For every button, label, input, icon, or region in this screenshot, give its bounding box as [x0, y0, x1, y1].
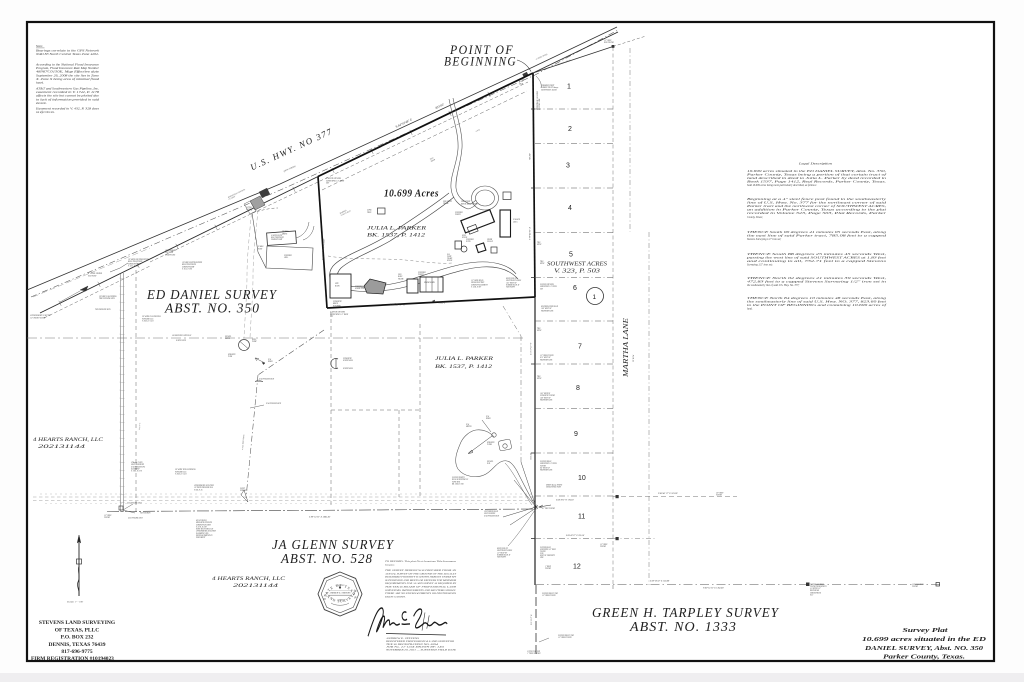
- svg-text:N 89°41′17″ E 319.99′: N 89°41′17″ E 319.99′: [657, 492, 678, 495]
- svg-text:THENCE North 84 degrees 10: THENCE North 84 degrees 10 minutes 48 se…: [747, 297, 887, 300]
- svg-text:ABST. NO. 528: ABST. NO. 528: [280, 551, 373, 566]
- svg-text:recorded in Volume 323, Pa: recorded in Volume 323, Page 503, Plat R…: [747, 212, 888, 215]
- svg-text:732.71′: 732.71′: [438, 302, 446, 305]
- svg-text:S 88°19′32″ E 150.48′: S 88°19′32″ E 150.48′: [650, 580, 670, 583]
- svg-text:STORM: STORM: [487, 239, 493, 241]
- svg-text:6394: 6394: [338, 599, 344, 602]
- svg-text:817-696-9775: 817-696-9775: [61, 649, 92, 655]
- svg-text:not affect this site.: not affect this site.: [36, 111, 55, 114]
- svg-text:Surveying 1/2″ iron set;: Surveying 1/2″ iron set;: [747, 264, 773, 267]
- svg-text:LINE: LINE: [539, 557, 543, 559]
- svg-text:Book 1537, Page 1412, Real: Book 1537, Page 1412, Real Records, Park…: [747, 181, 887, 184]
- svg-text:9: 9: [574, 431, 578, 438]
- svg-text:Notes:: Notes:: [35, 45, 43, 48]
- svg-text:ACTUAL SURVEY ON THE GROUN: ACTUAL SURVEY ON THE GROUND OF THE LEGAL…: [384, 572, 457, 575]
- svg-text:AREA: AREA: [512, 220, 518, 223]
- svg-text:PUMP: PUMP: [251, 341, 257, 343]
- svg-text:Parker County, Texas.: Parker County, Texas.: [883, 654, 966, 661]
- svg-text:50′ ROW: 50′ ROW: [633, 354, 635, 362]
- svg-text:REGISTERED: REGISTERED: [335, 585, 346, 587]
- svg-text:Said 10.699 acres being mo: Said 10.699 acres being more particularl…: [747, 184, 817, 187]
- svg-text:THENCE North 02 degrees 21: THENCE North 02 degrees 21 minutes 39 se…: [747, 277, 887, 280]
- svg-text:10: 10: [578, 475, 586, 482]
- svg-text:SOUTHWEST ACRES: SOUTHWEST ACRES: [547, 262, 607, 268]
- svg-text:11: 11: [578, 514, 585, 521]
- svg-text:202131144: 202131144: [38, 445, 86, 450]
- svg-text:DRIVE: DRIVE: [224, 338, 230, 340]
- svg-text:4 HEARTS RANCH, LLC: 4 HEARTS RANCH, LLC: [33, 438, 104, 443]
- svg-text:PUMP: PUMP: [446, 256, 451, 258]
- svg-text:PROPERTY LINE: PROPERTY LINE: [539, 470, 552, 472]
- svg-text:472.83 feet to a capped S: 472.83 feet to a capped Stevens Surveyin…: [747, 281, 887, 284]
- svg-text:S 89°12′32″ E 1442.42′: S 89°12′32″ E 1442.42′: [309, 516, 331, 519]
- svg-text:S 88°25′45″ W: S 88°25′45″ W: [390, 304, 406, 307]
- svg-text:N 89°12′32″ E 1362.48′: N 89°12′32″ E 1362.48′: [702, 587, 724, 590]
- svg-text:ANDREW E. STEVENS: ANDREW E. STEVENS: [329, 592, 352, 595]
- svg-text:THE SURVEY HEREON WAS PREP: THE SURVEY HEREON WAS PREPARED FROM AN: [385, 569, 457, 572]
- svg-text:THE TEXAS BOARD OF PROFESS: THE TEXAS BOARD OF PROFESSIONAL LAND: [385, 586, 457, 589]
- svg-text:BK. 1537, P. 1412: BK. 1537, P. 1412: [367, 233, 425, 239]
- svg-text:BRICK &amp; STONE: BRICK &amp; STONE: [461, 203, 479, 205]
- svg-text:202131144: 202131144: [233, 584, 279, 589]
- svg-text:WATER LINE: WATER LINE: [176, 339, 187, 342]
- svg-text:S 01°17′21″ W: S 01°17′21″ W: [530, 343, 533, 355]
- svg-text:THENCE South 00 degrees 41: THENCE South 00 degrees 41 minutes 05 se…: [747, 231, 887, 234]
- svg-text:PAD POST: PAD POST: [87, 274, 97, 277]
- svg-text:According to the National Floo: According to the National Flood Insuranc…: [35, 64, 101, 67]
- svg-text:METER: METER: [465, 426, 471, 428]
- svg-text:GAS PIPELINE SIGN: GAS PIPELINE SIGN: [259, 378, 275, 381]
- svg-text:easement recorded in V. 1742,: easement recorded in V. 1742, P. 1178: [36, 91, 100, 94]
- svg-text:S 01°17′ E: S 01°17′ E: [138, 423, 141, 430]
- svg-text:PATIO: PATIO: [465, 240, 471, 243]
- svg-text:GAS PIPELINE SIGN: GAS PIPELINE SIGN: [484, 514, 500, 517]
- svg-text:land described in deed to: land described in deed to Julia L. Parke…: [747, 177, 887, 180]
- svg-text:THENCE South 88 degrees 25: THENCE South 88 degrees 25 minutes 45 se…: [747, 253, 887, 256]
- svg-text:S 00°41′05″ E: S 00°41′05″ E: [529, 226, 532, 240]
- svg-text:TANKS: TANKS: [487, 443, 492, 446]
- svg-text:document.: document.: [36, 102, 47, 105]
- svg-text:SUPERVISION AND MEETS OR E: SUPERVISION AND MEETS OR EXCEEDS THE MIN…: [385, 579, 457, 582]
- svg-text:WATER WELL: WATER WELL: [343, 359, 353, 362]
- svg-text:OF FENCE LINE: OF FENCE LINE: [539, 99, 541, 110]
- svg-text:CUB: CUB: [540, 553, 543, 555]
- svg-text:BELL TELEPHONE: BELL TELEPHONE: [271, 237, 284, 239]
- svg-text:S 01°19′17″ W: S 01°19′17″ W: [530, 614, 533, 625]
- svg-text:1/2″ IRON FOUND: 1/2″ IRON FOUND: [30, 317, 46, 319]
- svg-text:MARTHA LANE: MARTHA LANE: [623, 317, 630, 378]
- svg-text:10.699 acres situated in t: 10.699 acres situated in the ED: [862, 636, 987, 643]
- svg-text:hazard.: hazard.: [36, 82, 44, 85]
- svg-text:BUILDING: BUILDING: [333, 305, 342, 307]
- svg-text:SURVEYORS. IMPROVEMENTS AND: SURVEYORS. IMPROVEMENTS AND BIG ITEMS SH…: [385, 589, 457, 592]
- svg-text:DENNIS, TEXAS 76439: DENNIS, TEXAS 76439: [49, 642, 106, 648]
- svg-text:4: 4: [568, 205, 572, 212]
- svg-text:1: 1: [567, 84, 571, 91]
- svg-text:FRAME: FRAME: [442, 202, 449, 205]
- svg-text:HORSE BARN: HORSE BARN: [423, 281, 435, 284]
- svg-text:S 89°41′17″ E 295.16′: S 89°41′17″ E 295.16′: [566, 534, 585, 537]
- svg-text:6: 6: [573, 285, 577, 292]
- svg-text:TO RECORD: This plat First: TO RECORD: This plat First American Titl…: [385, 560, 456, 563]
- svg-text:V. 2035, P. 1123: V. 2035, P. 1123: [142, 321, 154, 323]
- svg-text:ABANDONED ARTESIAN: ABANDONED ARTESIAN: [171, 334, 192, 337]
- svg-text:OF TEXAS, PLLC: OF TEXAS, PLLC: [55, 628, 99, 634]
- svg-text:AT&T and Southwestern Gas Pipe: AT&T and Southwestern Gas Pipeline, Inc.: [35, 88, 100, 91]
- svg-text:County, Texas;: County, Texas;: [747, 216, 763, 219]
- svg-text:S 84°10′2″ W 176.83′: S 84°10′2″ W 176.83′: [556, 499, 574, 502]
- svg-text:JULIA L. PARKER: JULIA L. PARKER: [435, 356, 494, 362]
- svg-text:ABST. NO. 1333: ABST. NO. 1333: [629, 619, 737, 634]
- svg-text:FOUND: FOUND: [715, 495, 723, 497]
- svg-text:WEST OF PROPERTY: WEST OF PROPERTY: [540, 555, 556, 557]
- svg-text:PROPERTY LINE: PROPERTY LINE: [539, 399, 552, 401]
- svg-text:TRIG PIPELINE SIGN: TRIG PIPELINE SIGN: [99, 298, 116, 300]
- svg-text:1″ PIPE FOUND: 1″ PIPE FOUND: [543, 508, 556, 510]
- svg-text:BARN: BARN: [335, 284, 340, 287]
- svg-text:10.699 Acres: 10.699 Acres: [384, 189, 439, 200]
- svg-text:V. 1234, P. 987: V. 1234, P. 987: [471, 285, 481, 288]
- svg-text:GREEN H. TARPLEY SURVEY: GREEN H. TARPLEY SURVEY: [592, 605, 779, 620]
- svg-text:Beginning at a 4″ steel f: Beginning at a 4″ steel fence post found…: [747, 198, 888, 201]
- svg-text:FOUND: FOUND: [103, 517, 111, 519]
- svg-text:FOUND: FOUND: [911, 586, 919, 588]
- svg-text:P.O. BOX 232: P.O. BOX 232: [61, 635, 94, 641]
- svg-text:PROPERTY LINE: PROPERTY LINE: [539, 359, 552, 361]
- svg-text:V. 1112, P. 398: V. 1112, P. 398: [182, 268, 192, 270]
- svg-text:785.08′: 785.08′: [530, 153, 532, 160]
- svg-text:3: 3: [566, 163, 570, 170]
- svg-text:V. 845, P. 36: V. 845, P. 36: [194, 488, 203, 491]
- svg-text:JOB No. 21-1234 DRAWN BY: JOB No. 21-1234 DRAWN BY: AES: [386, 646, 446, 649]
- svg-text:5: 5: [569, 252, 573, 259]
- svg-text:Company;: Company;: [385, 564, 395, 566]
- svg-text:NOVEMBER 29, 2021 — SURVEY: NOVEMBER 29, 2021 — SURVEYED FIELD DATE: [384, 649, 456, 652]
- svg-text:12: 12: [573, 564, 581, 571]
- svg-text:SOUTHWEST ACRES: SOUTHWEST ACRES: [541, 88, 557, 91]
- svg-text:FIRM REGISTRATION #10194023: FIRM REGISTRATION #10194023: [31, 656, 114, 662]
- svg-text:FOUND: FOUND: [599, 546, 607, 548]
- svg-text:PORCH: PORCH: [454, 214, 461, 216]
- svg-text:BEGINNING: BEGINNING: [444, 55, 517, 69]
- svg-text:Parker tract and the north: Parker tract and the northwest corner of…: [745, 205, 887, 208]
- svg-text:REQUIREMENTS FOR A LAND: REQUIREMENTS FOR A LAND SURVEY AS REQUIR…: [384, 582, 457, 585]
- svg-text:Stevens Surveying 1/2″ iron: Stevens Surveying 1/2″ iron set;: [747, 238, 781, 241]
- svg-text:BK. 1537, P. 1412: BK. 1537, P. 1412: [435, 364, 492, 370]
- svg-text:Parker County, Texas being: Parker County, Texas being a portion of …: [745, 174, 889, 177]
- svg-text:V. 2035, P. 1123: V. 2035, P. 1123: [175, 474, 187, 476]
- svg-text:THIS POINT: THIS POINT: [497, 557, 507, 559]
- svg-text:DANIEL SURVEY, Abst. NO. 3: DANIEL SURVEY, Abst. NO. 350: [864, 645, 983, 652]
- svg-text:ROD FOUND: ROD FOUND: [603, 42, 614, 44]
- svg-text:Legal Description: Legal Description: [798, 162, 833, 166]
- svg-text:passing the west line of: passing the west line of said SOUTHWEST …: [745, 257, 887, 260]
- svg-text:Easement recorded in V. 432, P: Easement recorded in V. 432, P. 328 does: [35, 108, 99, 111]
- svg-text:V. 1112, P. 398: V. 1112, P. 398: [128, 266, 138, 268]
- svg-text:DRIVE: DRIVE: [281, 233, 288, 235]
- svg-text:REGISTERED PROFESSIONAL LAND: REGISTERED PROFESSIONAL LAND SURVEYOR: [385, 640, 455, 643]
- svg-text:V. 323, P. 503: V. 323, P. 503: [554, 269, 600, 275]
- svg-text:HIGH: HIGH: [536, 330, 542, 332]
- svg-text:PROPERTY LINE: PROPERTY LINE: [540, 310, 553, 312]
- svg-text:PORCH: PORCH: [417, 274, 424, 276]
- svg-text:WATER WELL: WATER WELL: [343, 367, 353, 370]
- svg-text:DOCUMENT: DOCUMENT: [195, 537, 206, 539]
- svg-text:STEVENS LAND SURVEYING: STEVENS LAND SURVEYING: [39, 620, 116, 626]
- svg-text:HORSE PEN: HORSE PEN: [354, 288, 365, 290]
- svg-text:THIS POINT: THIS POINT: [506, 287, 516, 289]
- svg-text:the east line of said Par: the east line of said Parker tract, 785.…: [747, 235, 887, 238]
- svg-text:HIGH: HIGH: [536, 378, 542, 380]
- svg-text:BK. 2034, P. 394: BK. 2034, P. 394: [452, 482, 464, 485]
- svg-text:2: 2: [568, 126, 572, 133]
- svg-text:RISER: RISER: [485, 418, 491, 420]
- svg-text:1/2″ IRON FOUND: 1/2″ IRON FOUND: [542, 595, 556, 597]
- svg-text:4 HEARTS RANCH, LLC: 4 HEARTS RANCH, LLC: [212, 577, 286, 582]
- svg-text:TEXAS REGISTRATION NO. 6394: TEXAS REGISTRATION NO. 6394: [386, 643, 440, 646]
- svg-text:line of U.S. Hwy. No. 377: line of U.S. Hwy. No. 377 for the northe…: [747, 202, 887, 205]
- svg-text:JA GLENN SURVEY: JA GLENN SURVEY: [272, 537, 394, 552]
- svg-text:HOUSE: HOUSE: [446, 260, 452, 262]
- svg-text:and continuing in all, 732: and continuing in all, 732.71 feet to a …: [747, 260, 886, 263]
- svg-text:SCALE: 1″ = 100′: SCALE: 1″ = 100′: [67, 601, 84, 604]
- svg-text:NAD 83 North Central Texas Zon: NAD 83 North Central Texas Zone 4202.: [34, 53, 99, 56]
- svg-text:Program, Flood Insurance Rate: Program, Flood Insurance Rate Map Number: [35, 67, 99, 70]
- svg-text:the southeasterly line of: the southeasterly line of said U.S. Hwy.…: [747, 301, 887, 304]
- svg-text:Bearings correlate to the GPS: Bearings correlate to the GPS Network: [36, 50, 100, 53]
- svg-text:EXCEPT AS SHOWN.: EXCEPT AS SHOWN.: [384, 595, 406, 598]
- svg-text:the southeasterly line of: the southeasterly line of said U.S. Hwy.…: [747, 284, 800, 287]
- svg-text:1333.44′: 1333.44′: [530, 452, 533, 460]
- svg-text:5′ PIPE POST 2ND: 5′ PIPE POST 2ND: [527, 651, 541, 653]
- svg-text:to lack of information provide: to lack of information provided in said: [36, 98, 100, 101]
- svg-text:to the POINT OF BEGINNING: to the POINT OF BEGINNING and containing…: [747, 304, 889, 307]
- svg-text:10.699 acres situated in t: 10.699 acres situated in the ED DANIEL S…: [747, 170, 887, 173]
- svg-text:1/2″ IRON FOUND: 1/2″ IRON FOUND: [558, 637, 572, 639]
- svg-text:FOUND: FOUND: [539, 551, 546, 553]
- svg-text:HIGH: HIGH: [539, 263, 545, 265]
- svg-text:FOUND FROM WHICH: FOUND FROM WHICH: [809, 586, 827, 588]
- svg-text:10 WIDE SOUTH: 10 WIDE SOUTH: [271, 235, 283, 237]
- svg-text:HIGH: HIGH: [536, 244, 542, 246]
- svg-text:8: 8: [576, 385, 580, 392]
- svg-text:DESCRIBED PROPERTY IS SHOWN: DESCRIBED PROPERTY IS SHOWN HEREON UNDER…: [384, 577, 457, 579]
- svg-text:X. Zone X being area of minima: X. Zone X being area of minimal flood: [34, 78, 100, 81]
- svg-text:STEEL FENCE POST: STEEL FENCE POST: [546, 487, 562, 489]
- svg-text:Survey Plat: Survey Plat: [903, 627, 948, 634]
- svg-text:1: 1: [593, 294, 597, 301]
- svg-text:September 26, 2008 the site li: September 26, 2008 the site lies in Zone: [36, 74, 100, 77]
- svg-text:RISER: RISER: [267, 361, 273, 363]
- svg-text:WELL: WELL: [462, 235, 466, 237]
- svg-text:land.: land.: [747, 308, 753, 311]
- svg-text:V. 1742, P. 1178: V. 1742, P. 1178: [131, 470, 142, 473]
- svg-text:THIS PIPELINE SIGN: THIS PIPELINE SIGN: [95, 309, 111, 311]
- svg-text:HOUSE: HOUSE: [461, 237, 467, 239]
- svg-text:7: 7: [578, 344, 582, 351]
- svg-text:FRAME: FRAME: [397, 277, 404, 280]
- svg-text:SURVEYING 1/2″ IRON: SURVEYING 1/2″ IRON: [540, 549, 557, 551]
- svg-text:ANDREW E. STEVENS: ANDREW E. STEVENS: [384, 637, 420, 640]
- svg-text:an addition in Parker Coun: an addition in Parker County, Texas acco…: [747, 209, 887, 212]
- svg-text:THERE ARE NO ENCROACHMENTS: THERE ARE NO ENCROACHMENTS OR PROTRUSION…: [385, 592, 457, 595]
- svg-text:JULIA L. PARKER: JULIA L. PARKER: [367, 226, 427, 232]
- svg-text:FOUND: FOUND: [544, 568, 552, 570]
- svg-text:affects the site but cannot be: affects the site but cannot be plotted d…: [36, 95, 100, 98]
- svg-text:GAS PIPELINE SIGN: GAS PIPELINE SIGN: [266, 402, 282, 405]
- svg-text:UTILITY LINE: UTILITY LINE: [165, 254, 175, 256]
- svg-text:48367C0150E, Map Effective dat: 48367C0150E, Map Effective date: [36, 71, 101, 74]
